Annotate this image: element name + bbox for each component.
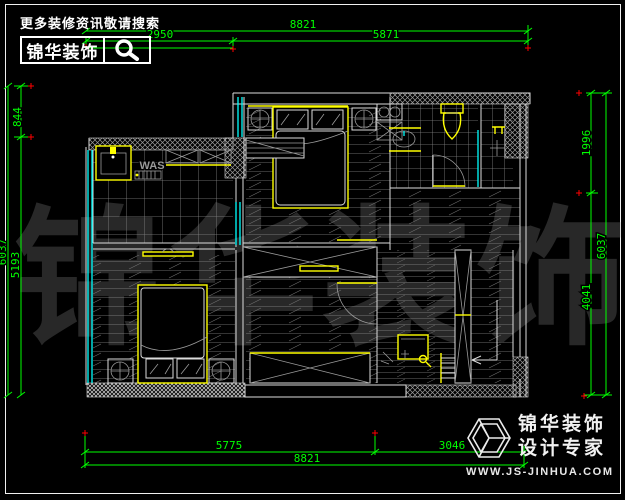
- search-icon: [112, 39, 142, 61]
- cube-logo-icon: [466, 413, 512, 463]
- dining-floor: [390, 190, 520, 250]
- bathroom-floor: [390, 104, 478, 188]
- washer-label: WAS: [139, 160, 164, 172]
- dim-left-seg1: 844: [11, 107, 24, 127]
- low-cabinet: [143, 252, 193, 256]
- magnifier-cell: [103, 38, 149, 62]
- footer-tagline: 设计专家: [518, 437, 606, 461]
- dim-top-total: 8821: [290, 18, 317, 31]
- washer-knob-icon: [136, 174, 139, 177]
- dim-left-total: 6037: [0, 239, 9, 266]
- wall-segment: [505, 104, 528, 158]
- dim-top-seg2: 5871: [373, 28, 400, 41]
- wall-segment: [406, 385, 516, 397]
- dim-right-total: 6037: [595, 233, 608, 260]
- dim-bottom-seg2: 3046: [439, 439, 466, 452]
- entry-floor: [471, 250, 513, 383]
- dim-left-seg2: 5193: [9, 252, 22, 279]
- wall-segment: [87, 383, 245, 397]
- wall-segment: [390, 93, 530, 104]
- wall-segment: [225, 138, 246, 178]
- dim-right-seg2: 4041: [580, 284, 593, 311]
- header-brand-name: 锦华装饰: [22, 38, 103, 62]
- bottom-wall-solid: [245, 385, 406, 397]
- drain-icon: [112, 156, 115, 159]
- dim-right-seg1: 1996: [580, 130, 593, 157]
- cad-canvas: 锦华装饰: [0, 0, 625, 500]
- header-slogan: 更多装修资讯敬请搜索: [20, 13, 160, 32]
- footer-website: WWW.JS-JINHUA.COM: [466, 466, 614, 478]
- header-logo: 锦华装饰: [20, 36, 151, 64]
- footer-logo: 锦华装饰 设计专家 WWW.JS-JINHUA.COM: [466, 413, 614, 478]
- footer-brand-name: 锦华装饰: [518, 413, 606, 437]
- dim-bottom-total: 8821: [294, 452, 321, 465]
- faucet-icon: [110, 147, 116, 154]
- dim-bottom-seg1: 5775: [216, 439, 243, 452]
